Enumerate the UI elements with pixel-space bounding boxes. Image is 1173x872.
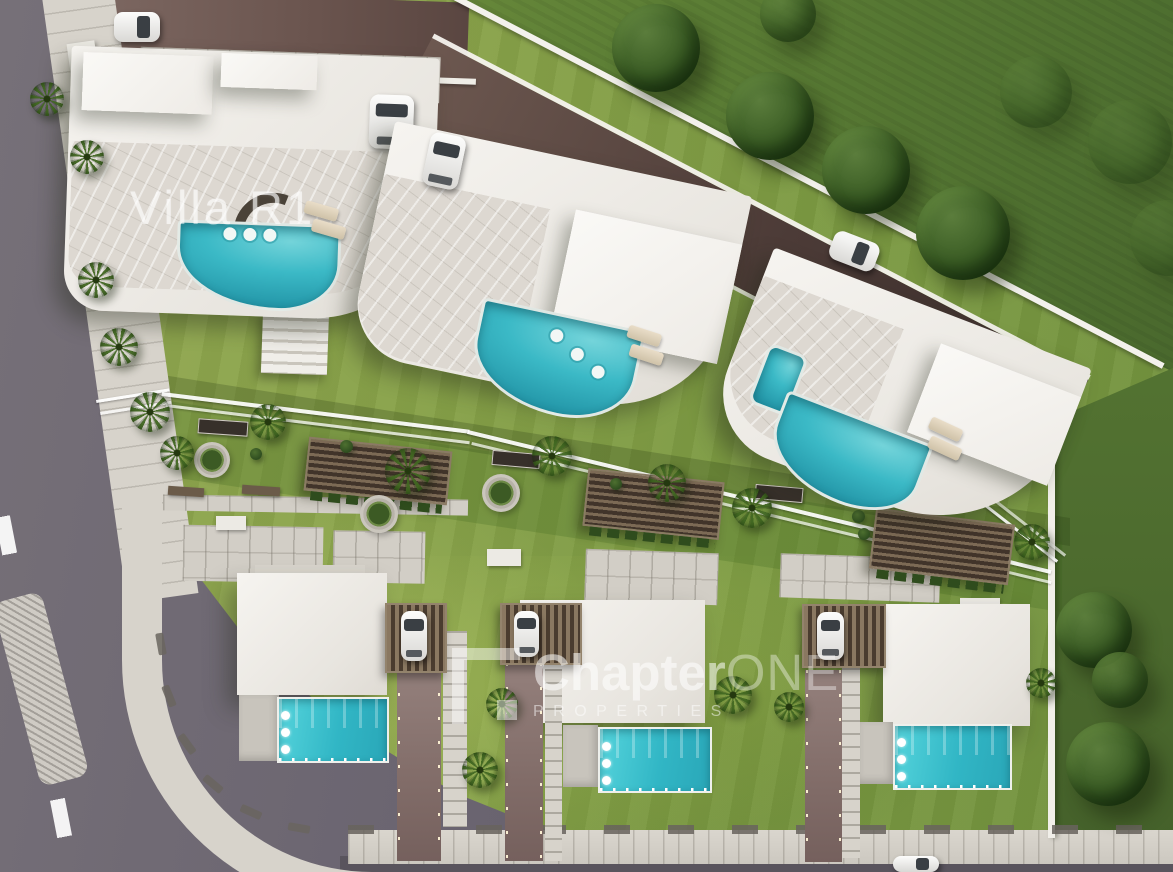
tree — [916, 186, 1010, 280]
parked-car — [401, 611, 427, 661]
watermark-text: ChapterONE PROPERTIES — [533, 648, 839, 721]
tree — [1066, 722, 1150, 806]
palm-tree — [100, 328, 138, 366]
tree — [726, 72, 814, 160]
pool-stool — [602, 776, 611, 785]
palm-tree — [250, 404, 286, 440]
outdoor-table — [216, 516, 246, 530]
villa-b2-pool — [598, 727, 712, 793]
pool-stool — [570, 346, 585, 361]
watermark-tagline: PROPERTIES — [533, 703, 839, 721]
tree — [1092, 652, 1148, 708]
garden-bench — [242, 485, 281, 497]
circular-planter — [194, 442, 230, 478]
palm-tree — [70, 140, 104, 174]
watermark-brand: ChapterONE — [533, 648, 839, 698]
pool-patio — [563, 725, 598, 787]
palm-tree — [1026, 668, 1056, 698]
villa-bottom-1 — [225, 565, 485, 865]
pool-stool — [897, 738, 906, 747]
circular-planter — [360, 495, 398, 533]
palm-tree — [130, 392, 170, 432]
pool-stool — [549, 328, 564, 343]
pool-stool — [897, 772, 906, 781]
villa-b3-pool — [893, 724, 1012, 790]
villa-r1-roof-slab — [221, 53, 318, 90]
villa-b1-pool — [277, 697, 389, 763]
villa-r1-label: Villa R1 — [130, 180, 315, 235]
palm-tree — [160, 436, 194, 470]
outdoor-table — [487, 549, 521, 566]
pool-stool — [602, 759, 611, 768]
car-on-street — [893, 856, 939, 872]
pool-stool — [897, 755, 906, 764]
pool-stool — [591, 364, 606, 379]
watermark-brand-secondary: ONE — [726, 644, 840, 701]
pool-patio — [860, 722, 893, 784]
car-on-street — [114, 12, 160, 42]
pool-stool — [602, 742, 611, 751]
villa-compound-aerial-render: Villa R1 ChapterONE PROPERTIES — [0, 0, 1173, 872]
parked-car — [827, 229, 883, 274]
palm-tree — [385, 448, 431, 494]
bush — [250, 448, 262, 460]
palm-tree — [1014, 524, 1050, 560]
pool-stool — [281, 728, 290, 737]
palm-tree — [30, 82, 64, 116]
tree-shadow — [1088, 100, 1172, 184]
villa-b3-roof — [883, 604, 1030, 726]
tree — [822, 126, 910, 214]
palm-tree — [532, 436, 572, 476]
pool-stool — [281, 745, 290, 754]
palm-tree — [78, 262, 114, 298]
tree-shadow — [1000, 56, 1072, 128]
watermark: ChapterONE PROPERTIES — [452, 648, 839, 724]
palm-tree — [648, 464, 686, 502]
stepping-stone-path — [842, 668, 860, 858]
palm-tree — [732, 488, 772, 528]
chapter-one-logo-icon — [452, 648, 520, 724]
driveway — [397, 669, 441, 861]
villa-bottom-2 — [495, 595, 725, 872]
villa-r1-roof-slab — [82, 52, 214, 115]
villa-bottom-3 — [790, 596, 1060, 872]
tree — [612, 4, 700, 92]
palm-tree — [462, 752, 498, 788]
pool-patio — [239, 695, 279, 761]
circular-planter — [482, 474, 520, 512]
villa-b1-roof — [237, 573, 387, 695]
watermark-brand-primary: Chapter — [533, 644, 726, 701]
pool-stool — [281, 711, 290, 720]
